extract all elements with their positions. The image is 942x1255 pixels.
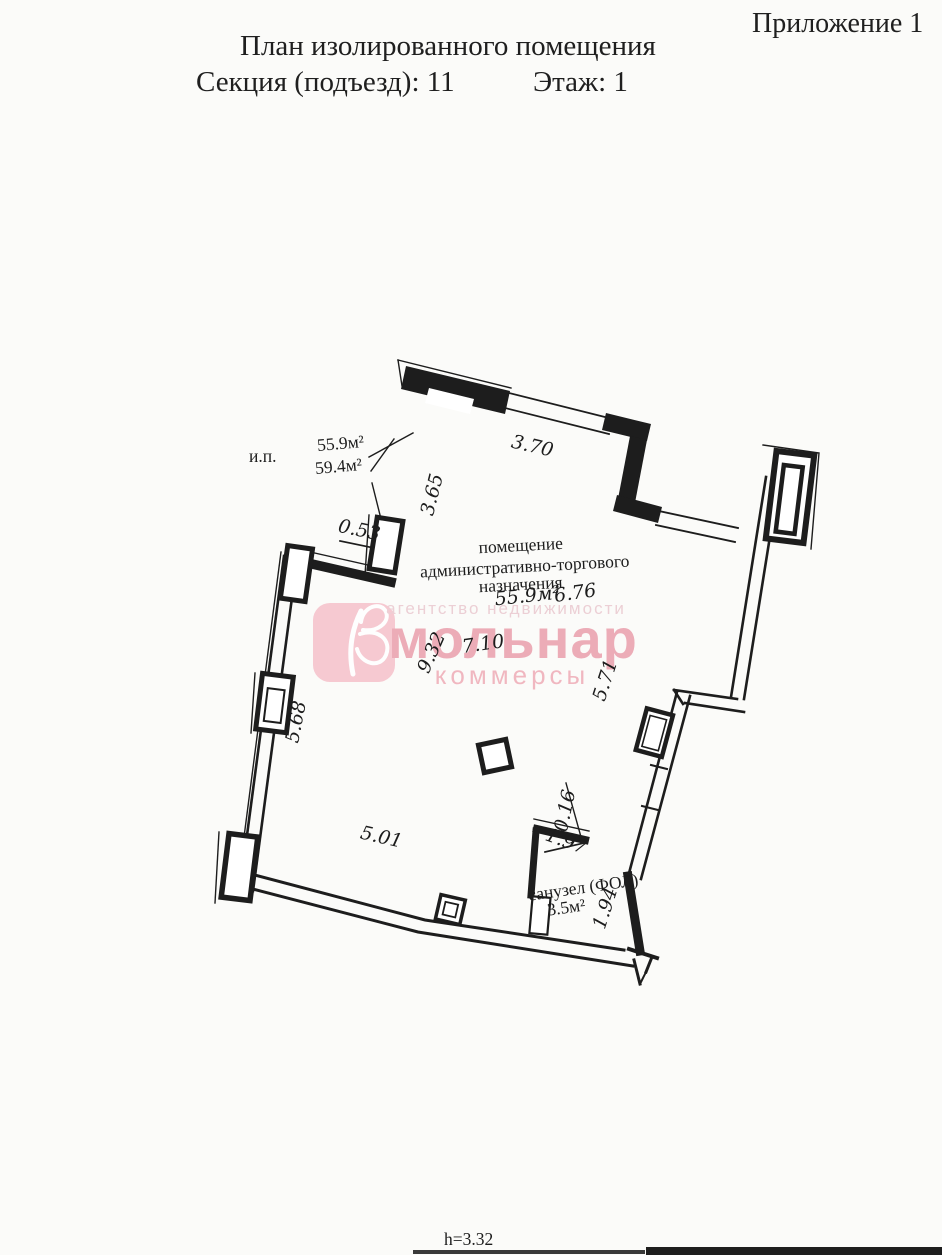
dim-3-65: 3.65: [416, 471, 448, 517]
wall-ticks: [642, 765, 667, 810]
area-upper-label: 55.9м²: [316, 431, 365, 455]
watermark-subtitle-text: коммерсы: [435, 660, 589, 690]
floor-plan-drawing: агентство недвижимости мольнар коммерсы: [0, 0, 942, 1255]
corner-bottom-left: [221, 834, 258, 901]
bathroom-area-label: 3.5м²: [546, 894, 587, 919]
scanned-floor-plan-page: Приложение 1 План изолированного помещен…: [0, 0, 942, 1255]
pier-left-top: [280, 546, 312, 602]
dim-3-70: 3.70: [509, 431, 555, 462]
top-mid-pier-foot: [613, 495, 662, 523]
bottom-wall-post-inner: [443, 902, 459, 918]
height-note: h=3.32: [444, 1229, 493, 1249]
ip-label: и.п.: [249, 446, 276, 466]
area-lower-label: 59.4м²: [314, 454, 363, 478]
dim-5-01: 5.01: [358, 822, 404, 853]
room-label-line1: помещение: [478, 533, 564, 557]
top-mid-pier: [602, 413, 651, 441]
window-lines: [505, 393, 738, 542]
pier-left-mid-inner: [264, 688, 285, 723]
free-standing-column: [478, 739, 511, 772]
